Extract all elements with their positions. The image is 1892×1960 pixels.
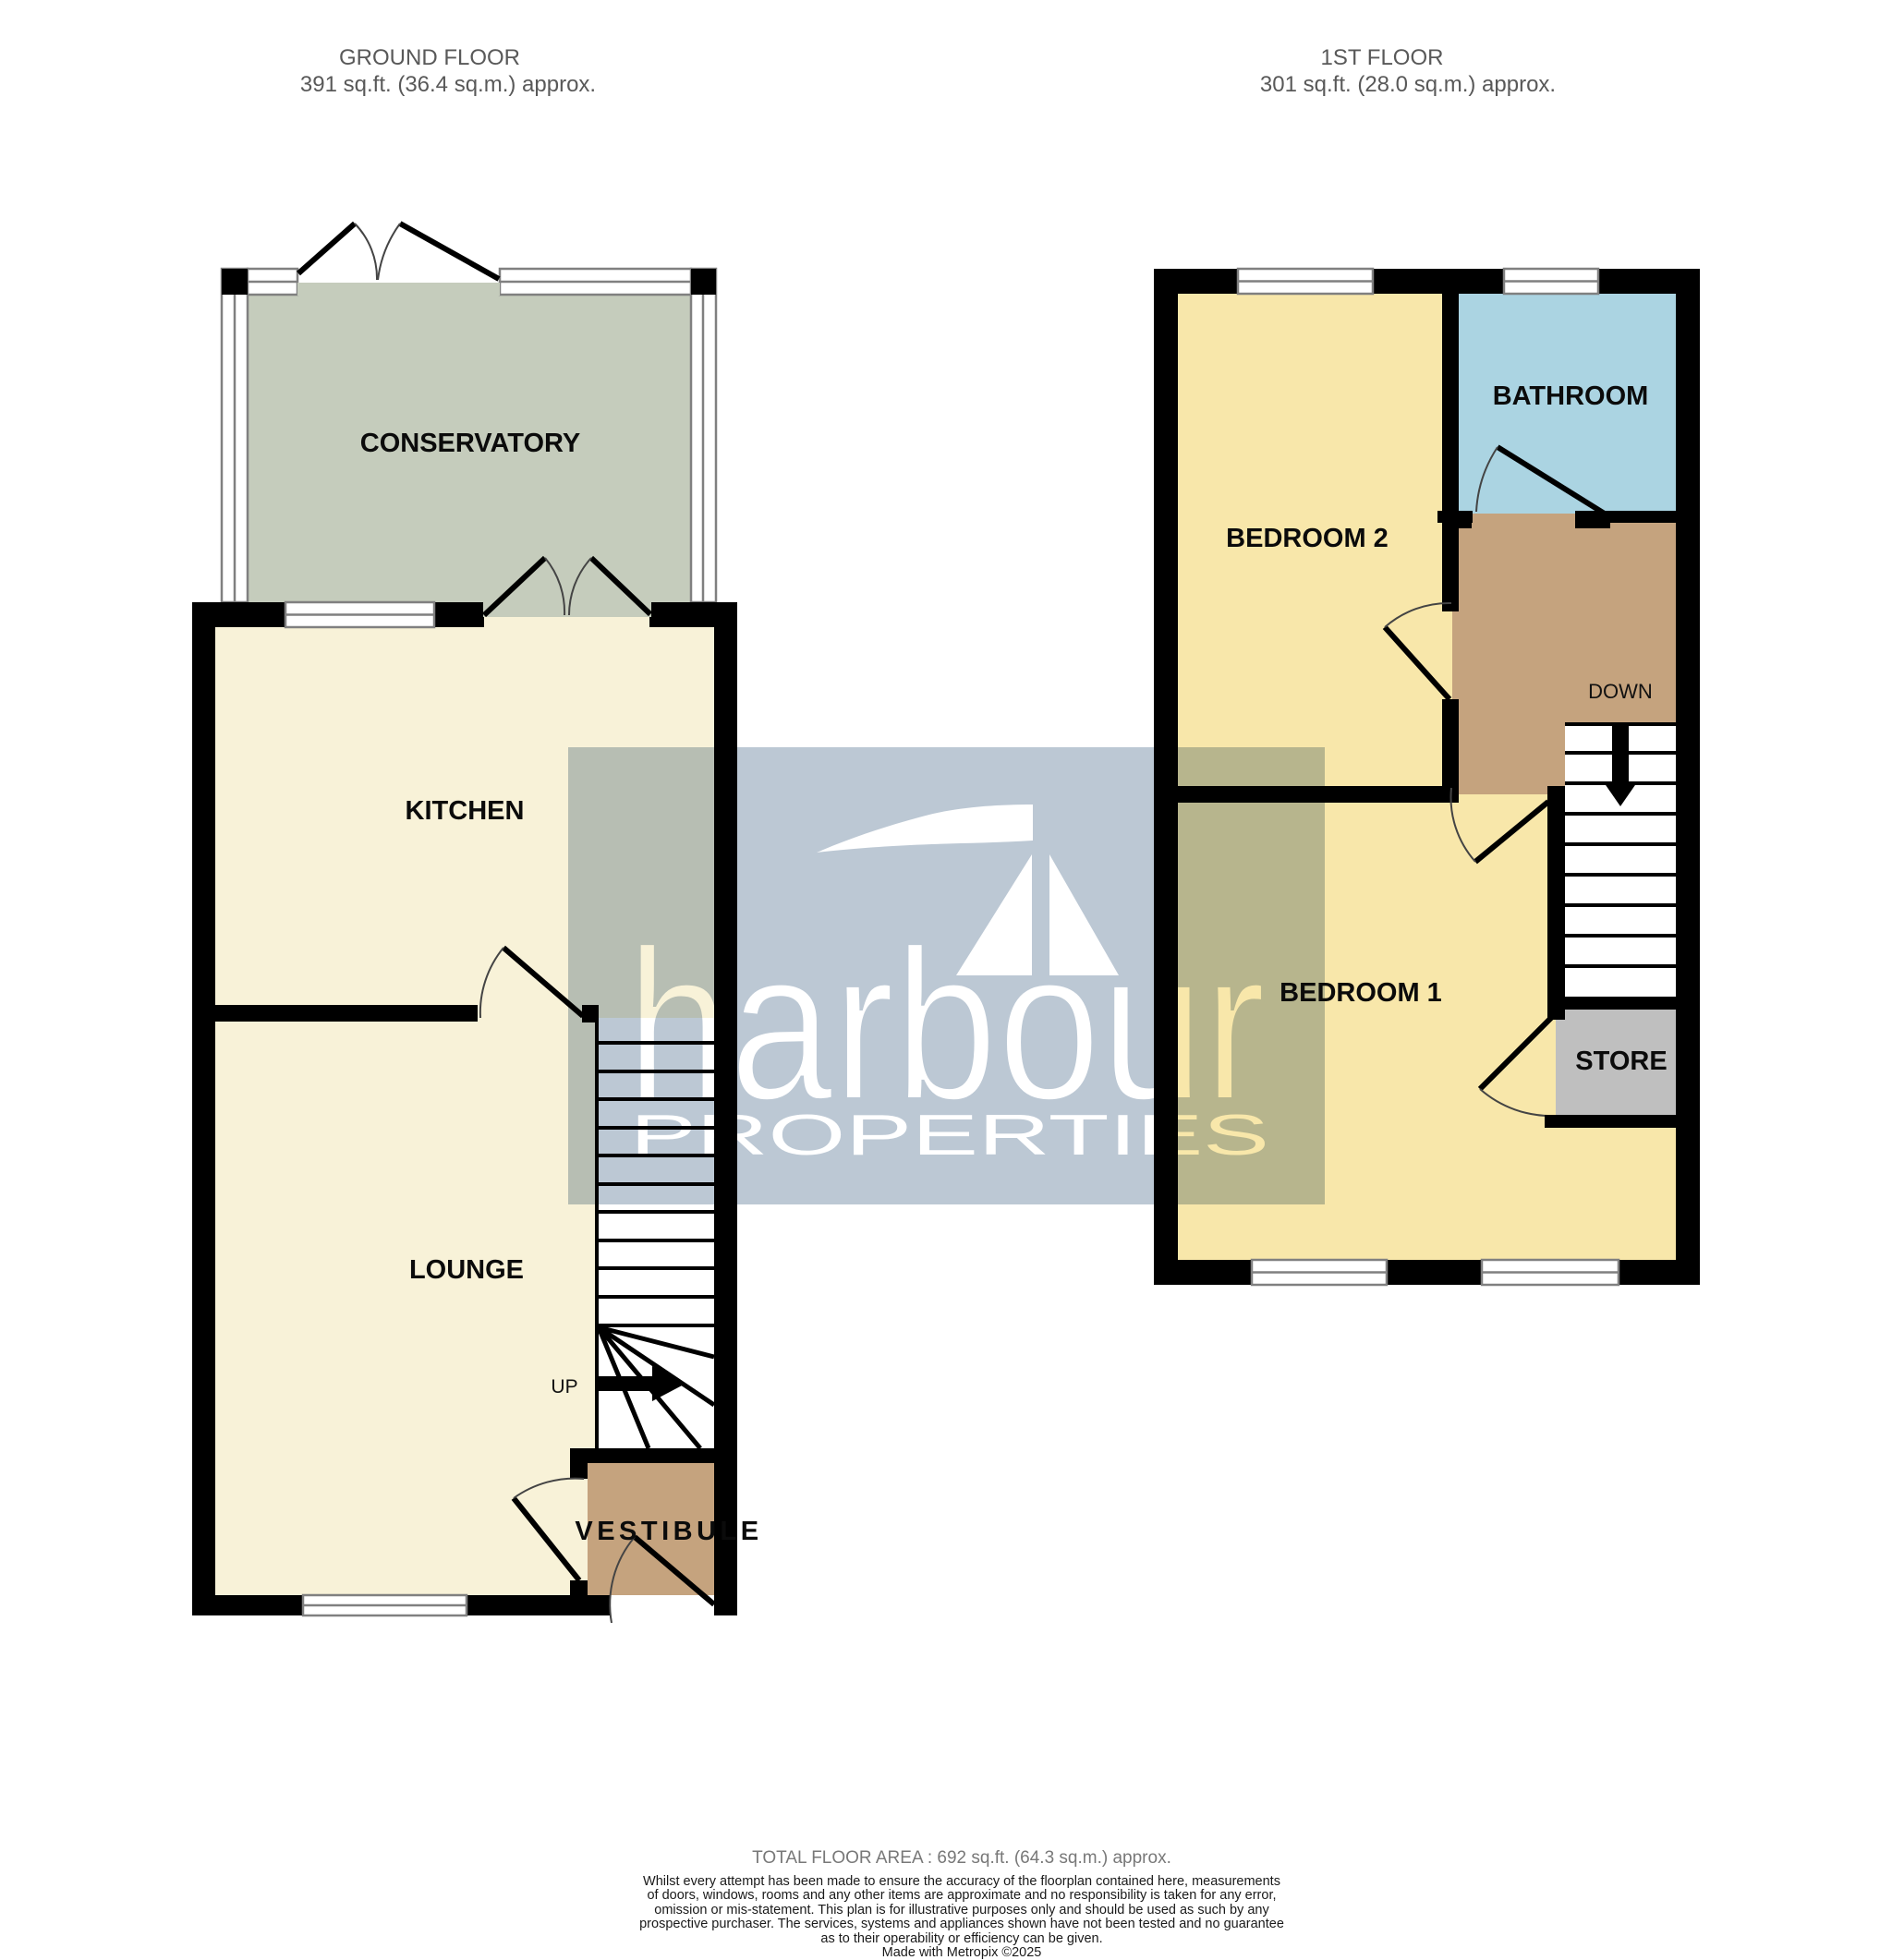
- svg-text:as to their operability or eff: as to their operability or efficiency ca…: [820, 1931, 1102, 1946]
- svg-text:VESTIBULE: VESTIBULE: [575, 1517, 762, 1546]
- svg-text:BEDROOM 2: BEDROOM 2: [1226, 524, 1389, 553]
- svg-text:STORE: STORE: [1575, 1047, 1667, 1076]
- svg-text:BEDROOM 1: BEDROOM 1: [1280, 978, 1442, 1008]
- svg-text:KITCHEN: KITCHEN: [406, 796, 525, 826]
- svg-text:Made with Metropix ©2025: Made with Metropix ©2025: [882, 1945, 1042, 1960]
- svg-text:TOTAL FLOOR AREA : 692 sq.ft.: TOTAL FLOOR AREA : 692 sq.ft. (64.3 sq.m…: [752, 1848, 1171, 1868]
- svg-text:UP: UP: [551, 1376, 577, 1397]
- svg-text:of doors, windows, rooms and a: of doors, windows, rooms and any other i…: [647, 1888, 1276, 1903]
- svg-text:GROUND FLOOR: GROUND FLOOR: [339, 45, 520, 70]
- svg-text:prospective purchaser. The ser: prospective purchaser. The services, sys…: [639, 1917, 1284, 1931]
- svg-text:DOWN: DOWN: [1588, 680, 1653, 703]
- svg-text:CONSERVATORY: CONSERVATORY: [360, 429, 581, 458]
- svg-text:391 sq.ft. (36.4 sq.m.) approx: 391 sq.ft. (36.4 sq.m.) approx.: [300, 72, 596, 97]
- svg-text:BATHROOM: BATHROOM: [1493, 381, 1649, 411]
- svg-text:LOUNGE: LOUNGE: [409, 1255, 524, 1285]
- svg-text:Whilst every attempt has been: Whilst every attempt has been made to en…: [643, 1874, 1280, 1889]
- svg-text:omission or mis-statement. Thi: omission or mis-statement. This plan is …: [654, 1903, 1269, 1918]
- svg-text:301 sq.ft. (28.0 sq.m.) approx: 301 sq.ft. (28.0 sq.m.) approx.: [1260, 72, 1556, 97]
- svg-text:1ST FLOOR: 1ST FLOOR: [1321, 45, 1444, 70]
